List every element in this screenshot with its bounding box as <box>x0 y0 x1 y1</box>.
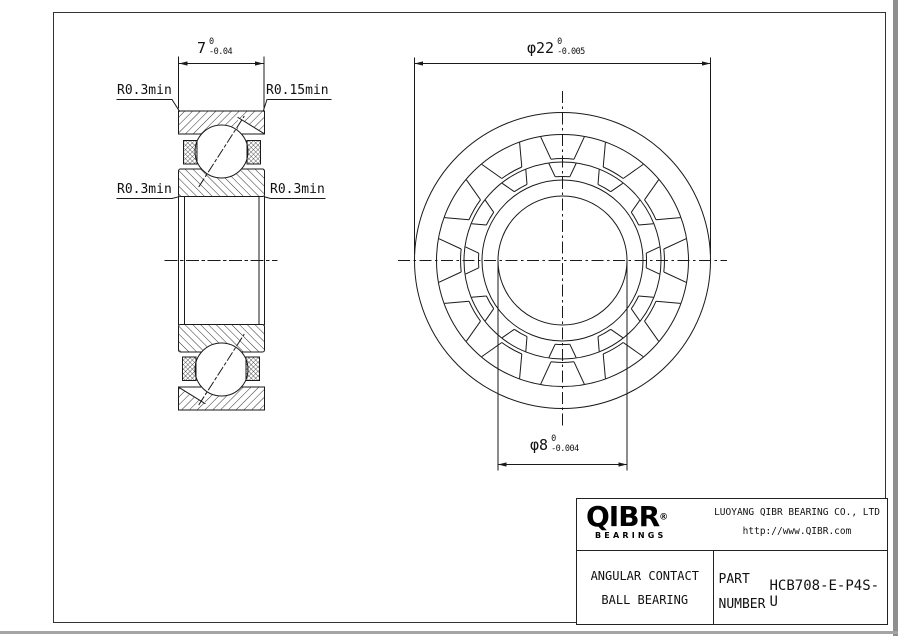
sheet-edge-bottom <box>0 631 898 634</box>
logo-text: QIBR <box>586 500 659 533</box>
company-name: LUOYANG QIBR BEARING CO., LTD <box>709 507 885 518</box>
title-block-header: QIBR® BEARINGS LUOYANG QIBR BEARING CO.,… <box>577 499 887 551</box>
product-type-line1: ANGULAR CONTACT <box>577 569 713 583</box>
part-number-value: HCB708-E-P4S-U <box>770 578 888 610</box>
product-type-line2: BALL BEARING <box>577 593 713 607</box>
od-value: φ22 <box>527 40 554 57</box>
drawing-sheet: 7 0 -0.04 φ22 0 -0.005 φ8 0 -0.004 R0.3m… <box>0 0 900 636</box>
company-website: http://www.QIBR.com <box>709 526 885 537</box>
width-tol-lower: -0.04 <box>209 48 232 58</box>
od-tol-lower: -0.005 <box>557 48 585 58</box>
width-dimension-text: 7 0 -0.04 <box>197 40 232 57</box>
fillet-label-top-right: R0.15min <box>266 84 329 98</box>
bore-value: φ8 <box>530 437 548 454</box>
logo-subtext: BEARINGS <box>595 531 668 540</box>
part-number-label: PART NUMBER <box>719 567 766 617</box>
bore-dimension-text: φ8 0 -0.004 <box>530 437 579 454</box>
title-block: QIBR® BEARINGS LUOYANG QIBR BEARING CO.,… <box>576 498 888 625</box>
fillet-label-top-left: R0.3min <box>117 84 172 98</box>
company-logo: QIBR® BEARINGS <box>586 502 668 540</box>
company-info: LUOYANG QIBR BEARING CO., LTD http://www… <box>709 507 885 537</box>
registered-trademark-icon: ® <box>659 513 668 523</box>
width-value: 7 <box>197 40 206 57</box>
sheet-edge-right <box>893 0 898 636</box>
product-type-cell: ANGULAR CONTACT BALL BEARING <box>577 551 713 625</box>
bore-tol-lower: -0.004 <box>551 445 579 455</box>
part-number-cell: PART NUMBER HCB708-E-P4S-U <box>713 551 888 625</box>
title-block-body: ANGULAR CONTACT BALL BEARING PART NUMBER… <box>577 551 887 625</box>
od-dimension-text: φ22 0 -0.005 <box>527 40 585 57</box>
fillet-label-mid-right: R0.3min <box>270 183 325 197</box>
fillet-label-mid-left: R0.3min <box>117 183 172 197</box>
